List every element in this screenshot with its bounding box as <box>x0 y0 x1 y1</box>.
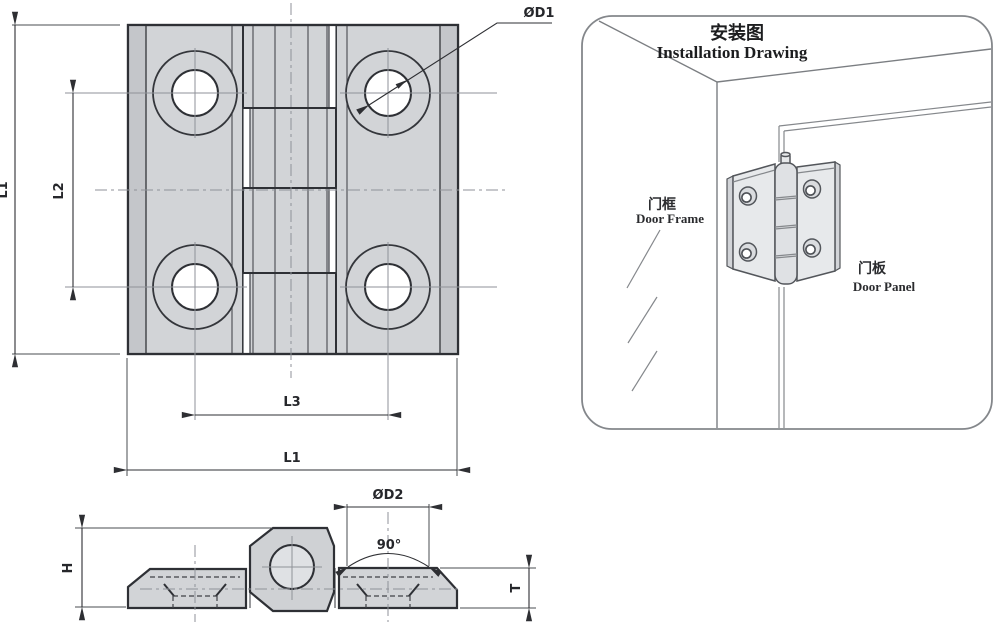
dim-t-label: T <box>509 583 524 592</box>
hinge-3d <box>727 153 840 285</box>
dim-l2-label: L2 <box>52 182 67 199</box>
door-frame-label-en: Door Frame <box>636 211 704 226</box>
door-panel-label-en: Door Panel <box>853 279 916 294</box>
technical-drawing-page: L1 L2 L3 L1 ØD1 <box>0 0 1000 624</box>
dim-d1-label: ØD1 <box>524 6 555 21</box>
knuckle-gap <box>329 188 336 273</box>
dim-d2-label: ØD2 <box>373 488 404 503</box>
dim-h-label: H <box>61 563 76 574</box>
hinge-3d-right-leaf <box>797 162 835 281</box>
installation-drawing: 安装图 Installation Drawing 门框 Door Frame 门… <box>582 16 992 429</box>
knuckle-gap <box>329 25 336 108</box>
hinge-3d-left-leaf <box>733 164 775 281</box>
installation-title-en: Installation Drawing <box>657 43 808 62</box>
dim-l1-horizontal-label: L1 <box>283 451 300 466</box>
hinge-drawing-svg: L1 L2 L3 L1 ØD1 <box>0 0 1000 624</box>
door-panel-label-zh: 门板 <box>858 260 887 277</box>
knuckle-gap <box>243 273 250 354</box>
dim-l3-label: L3 <box>283 395 300 410</box>
side-right-leaf <box>339 568 457 608</box>
hinge-front-view <box>65 3 505 420</box>
hinge-3d-barrel <box>775 163 797 284</box>
knuckle-gap <box>243 108 250 188</box>
installation-title-zh: 安装图 <box>710 22 764 44</box>
dim-l1-vertical-label: L1 <box>0 181 11 198</box>
countersink-angle-label: 90° <box>377 538 402 553</box>
